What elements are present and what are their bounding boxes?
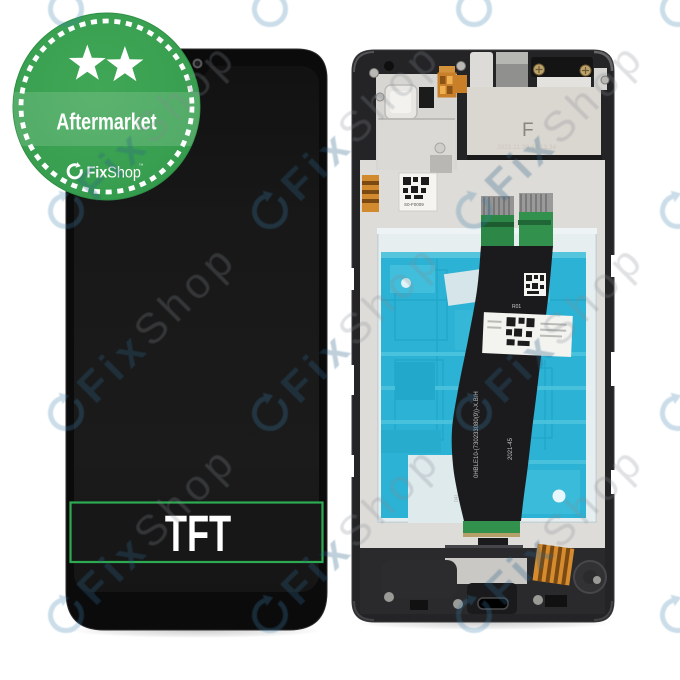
svg-text:R01: R01 — [512, 304, 521, 310]
svg-text:04I: 04I — [454, 495, 460, 502]
svg-text:0HBLE10-(730233080(9))-X.B/H: 0HBLE10-(730233080(9))-X.B/H — [474, 391, 480, 478]
svg-text:S0-F0009: S0-F0009 — [404, 202, 424, 207]
svg-text:2021-45: 2021-45 — [508, 437, 514, 460]
